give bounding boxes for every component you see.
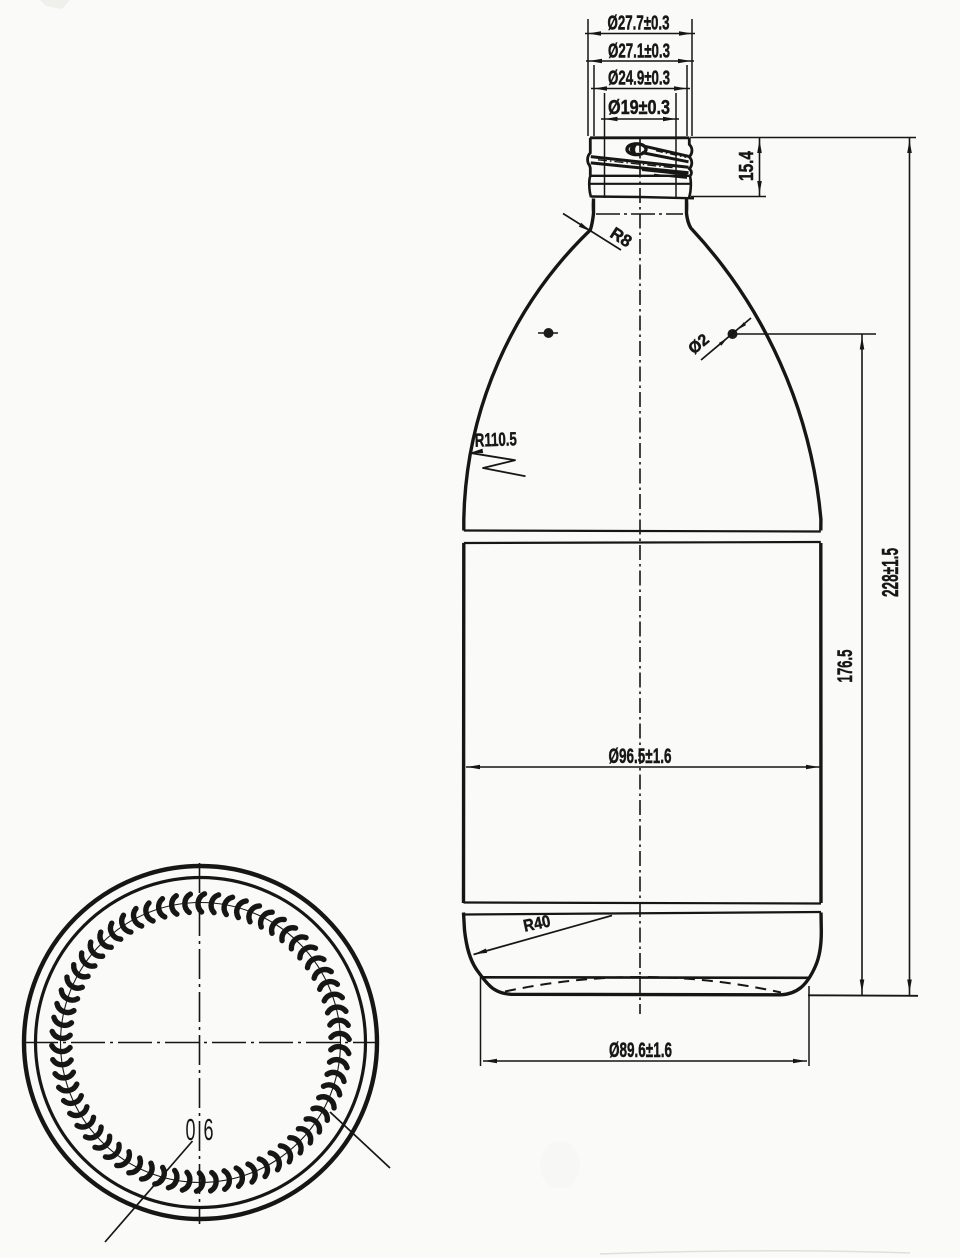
svg-text:Ø19±0.3: Ø19±0.3: [608, 97, 670, 119]
svg-text:Ø27.1±0.3: Ø27.1±0.3: [608, 41, 670, 63]
svg-text:176.5: 176.5: [834, 649, 857, 682]
svg-text:15.4: 15.4: [736, 150, 758, 181]
svg-text:R110.5: R110.5: [474, 429, 517, 451]
svg-text:Ø24.9±0.3: Ø24.9±0.3: [608, 68, 670, 90]
svg-text:6: 6: [204, 1112, 214, 1147]
svg-text:Ø96.5±1.6: Ø96.5±1.6: [609, 745, 672, 768]
svg-text:Ø89.6±1.6: Ø89.6±1.6: [609, 1039, 672, 1062]
svg-text:Ø27.7±0.3: Ø27.7±0.3: [608, 13, 670, 35]
svg-text:0: 0: [186, 1112, 196, 1147]
svg-text:228±1.5: 228±1.5: [877, 548, 903, 597]
